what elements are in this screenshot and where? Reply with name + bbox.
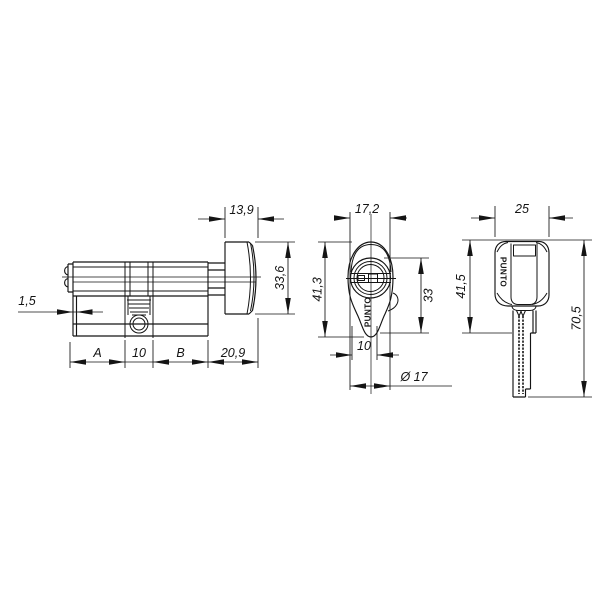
dim-label-total-length: 70,5 bbox=[570, 306, 584, 330]
dim-knob-height: 33,6 bbox=[255, 242, 295, 314]
spindle-groove-tips bbox=[517, 311, 526, 317]
thumbturn-knob-outline bbox=[225, 242, 256, 314]
dim-label-cam-lip: 1,5 bbox=[18, 294, 35, 308]
technical-drawing-canvas: 13,9 33,6 1,5 A 10 B 20,9 bbox=[0, 0, 600, 600]
dim-face-height: 41,3 bbox=[311, 242, 365, 337]
dim-knob-width: 13,9 bbox=[198, 203, 284, 238]
dim-head-width: 25 bbox=[471, 202, 573, 237]
dim-label-keyway-width: 10 bbox=[357, 339, 371, 353]
front-view: PUNTO 17,2 41,3 33 10 bbox=[311, 202, 453, 394]
dim-label-face-width: 17,2 bbox=[355, 202, 379, 216]
dim-label-knob-total: 20,9 bbox=[220, 346, 245, 360]
dim-plug-diameter: Ø 17 bbox=[350, 370, 452, 389]
key-view: PUNTO 25 41,5 70,5 bbox=[454, 202, 592, 397]
knob-neck bbox=[208, 263, 225, 295]
side-view: 13,9 33,6 1,5 A 10 B 20,9 bbox=[18, 203, 295, 368]
dim-label-center-width: 10 bbox=[132, 346, 146, 360]
spindle-grooves bbox=[519, 316, 523, 394]
cylinder-barrel-inner-lines bbox=[73, 267, 208, 291]
brand-punto-key: PUNTO bbox=[499, 257, 508, 288]
cylinder-barrel-outline bbox=[73, 262, 208, 336]
dim-label-head-width: 25 bbox=[514, 202, 529, 216]
cam-stack bbox=[127, 296, 151, 315]
brand-punto-front: PUNTO bbox=[364, 297, 373, 328]
dim-label-plug-diameter: Ø 17 bbox=[399, 370, 428, 384]
thumbturn-knob-curves bbox=[247, 242, 254, 314]
dim-label-knob-width: 13,9 bbox=[229, 203, 253, 217]
cylinder-axis-line bbox=[62, 277, 261, 282]
cam-end-cap bbox=[65, 264, 73, 292]
knob-head-collar bbox=[512, 306, 536, 311]
dim-total-length: 70,5 bbox=[528, 240, 592, 397]
dim-label-half-b: B bbox=[176, 346, 184, 360]
knob-head-inset bbox=[511, 244, 537, 305]
dim-length-sections: A 10 B 20,9 bbox=[70, 318, 258, 368]
dim-label-face-height: 41,3 bbox=[311, 277, 325, 301]
dim-label-body-height: 33 bbox=[422, 289, 436, 303]
dim-label-head-height: 41,5 bbox=[454, 274, 468, 298]
spindle-outline bbox=[513, 311, 536, 398]
dim-face-width: 17,2 bbox=[334, 202, 407, 390]
dim-label-half-a: A bbox=[92, 346, 101, 360]
cylinder-dimension-drawing: 13,9 33,6 1,5 A 10 B 20,9 bbox=[0, 0, 600, 600]
dim-label-knob-height: 33,6 bbox=[273, 266, 287, 290]
dim-cam-lip: 1,5 bbox=[18, 294, 103, 315]
